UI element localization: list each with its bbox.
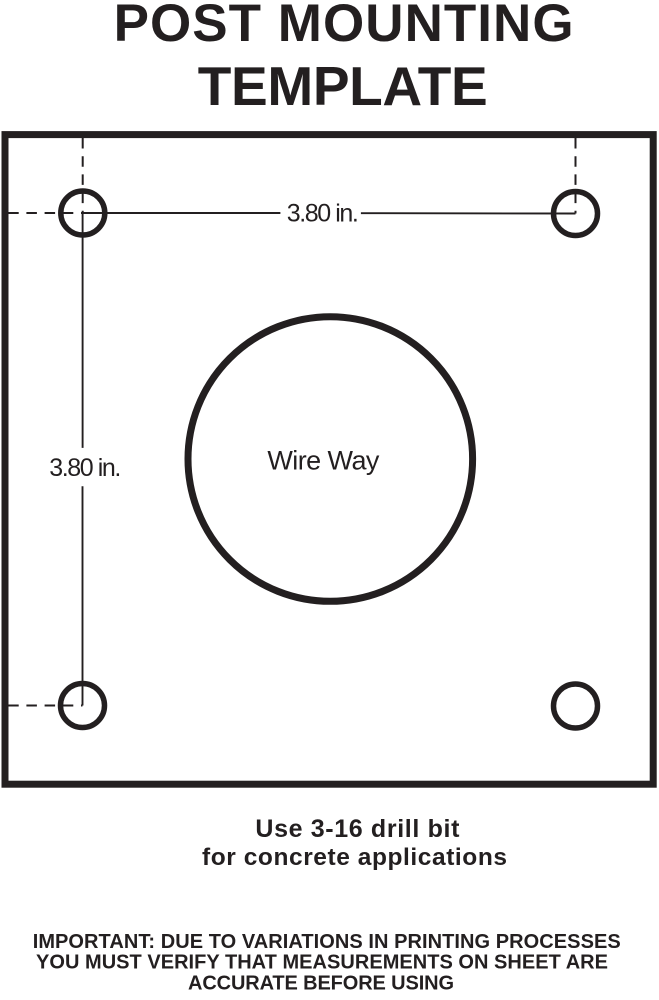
svg-text:for concrete applications: for concrete applications [202, 844, 507, 871]
svg-text:3.80 in.: 3.80 in. [49, 454, 121, 482]
svg-text:Wire Way: Wire Way [267, 446, 380, 476]
svg-text:3.80 in.: 3.80 in. [287, 200, 359, 228]
svg-text:Use 3-16 drill bit: Use 3-16 drill bit [255, 815, 460, 843]
svg-text:ACCURATE BEFORE USING: ACCURATE BEFORE USING [188, 972, 454, 994]
svg-text:IMPORTANT: DUE TO VARIATIONS I: IMPORTANT: DUE TO VARIATIONS IN PRINTING… [33, 931, 621, 953]
svg-text:TEMPLATE: TEMPLATE [198, 55, 488, 117]
svg-text:YOU MUST VERIFY THAT MEASUREME: YOU MUST VERIFY THAT MEASUREMENTS ON SHE… [36, 952, 608, 974]
svg-text:POST MOUNTING: POST MOUNTING [114, 0, 574, 53]
